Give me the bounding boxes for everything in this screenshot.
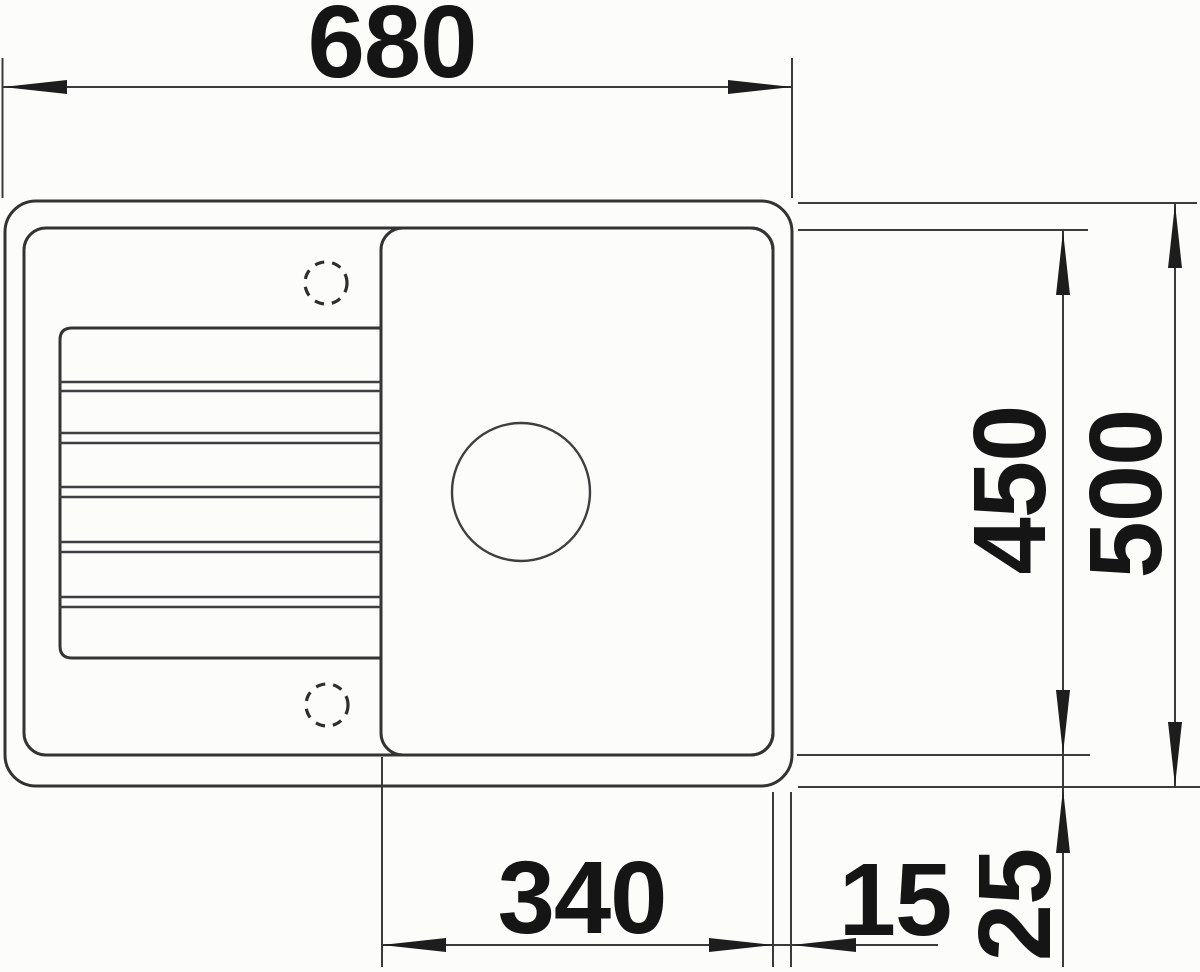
- arrowhead-right: [709, 938, 773, 952]
- dim-edge-gap-bottom: 25: [957, 789, 1072, 961]
- tap-hole-top-circle: [305, 262, 347, 304]
- drain-hole-circle: [452, 423, 590, 561]
- dim-label-depth-bowl: 450: [952, 406, 1067, 575]
- dim-label-width-bowl: 340: [498, 840, 667, 955]
- drainboard-outline: [60, 328, 381, 658]
- dim-label-edge-gap-bottom: 25: [957, 849, 1072, 962]
- technical-drawing-canvas: 680 500 450 25: [0, 0, 1200, 972]
- arrowhead-right: [728, 80, 792, 94]
- dim-edge-gap-right: 15: [773, 792, 951, 967]
- sink-dimension-drawing: 680 500 450 25: [0, 0, 1200, 972]
- arrowhead-up: [1056, 789, 1070, 853]
- dim-label-width-overall: 680: [308, 0, 477, 99]
- tap-hole-bottom-circle: [306, 684, 348, 726]
- sink-outer-outline: [5, 201, 792, 786]
- arrowhead-up: [1168, 204, 1182, 268]
- dim-label-depth-overall: 500: [1068, 410, 1183, 579]
- arrowhead-up: [1056, 231, 1070, 295]
- dim-width-overall: 680: [3, 0, 793, 198]
- bowl-outline: [381, 228, 773, 755]
- dim-width-bowl: 340: [382, 757, 773, 967]
- arrowhead-left: [3, 80, 67, 94]
- dim-label-edge-gap-right: 15: [839, 842, 952, 957]
- arrowhead-down: [1168, 722, 1182, 786]
- drainboard-grooves: [59, 382, 381, 607]
- arrowhead-down: [1056, 690, 1070, 754]
- sink-body: [5, 201, 792, 786]
- arrowhead-left: [382, 938, 446, 952]
- sink-rim-outline: [24, 228, 773, 755]
